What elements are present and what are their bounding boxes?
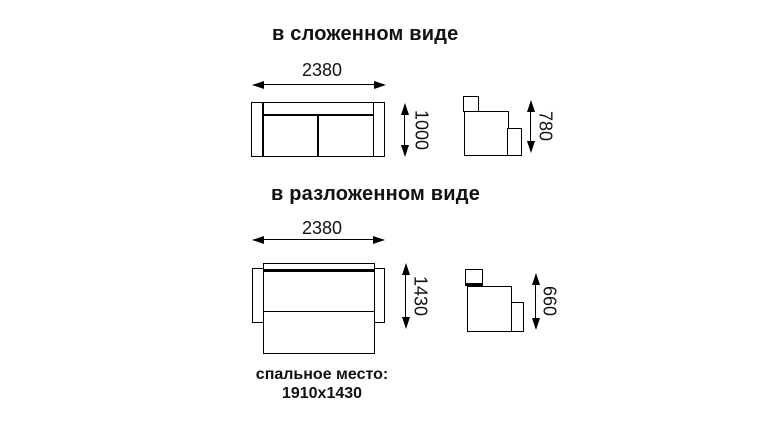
arrowhead-left-icon <box>252 236 264 244</box>
arrowhead-up-icon <box>402 263 410 275</box>
right-armrest-line <box>373 103 375 156</box>
unfolded-width-dimension-arrow <box>252 235 385 244</box>
side-backrest-top <box>465 269 483 286</box>
folded-height-dimension-arrow <box>400 103 409 157</box>
folded-side-height-label: 780 <box>535 111 556 141</box>
arrowhead-right-icon <box>373 236 385 244</box>
right-armrest <box>374 268 386 323</box>
bed-extension <box>263 311 375 355</box>
unfolded-view-title: в разложенном виде <box>271 183 480 206</box>
arrow-line <box>254 84 384 86</box>
backrest-thick-line <box>264 269 374 272</box>
left-armrest-line <box>262 103 264 156</box>
arrowhead-down-icon <box>401 145 409 157</box>
sofa-body <box>263 263 375 312</box>
unfolded-height-label: 1430 <box>410 276 431 316</box>
unfolded-side-height-label: 660 <box>539 286 560 316</box>
side-body <box>467 286 512 332</box>
arrow-line <box>254 239 383 241</box>
sofa-dimensions-diagram: в сложенном виде 2380 1000 780 в разложе… <box>0 0 770 433</box>
side-seat-step <box>511 302 524 332</box>
arrowhead-down-icon <box>402 317 410 329</box>
side-body <box>464 111 509 156</box>
sleeping-area-dimensions: 1910x1430 <box>256 384 388 403</box>
folded-sofa-front-view <box>251 102 385 157</box>
folded-height-label: 1000 <box>411 110 432 150</box>
arrowhead-down-icon <box>527 141 535 153</box>
arrowhead-down-icon <box>532 318 540 330</box>
arrowhead-up-icon <box>401 103 409 115</box>
arrowhead-up-icon <box>527 100 535 112</box>
sleeping-area-label: спальное место: <box>256 365 388 384</box>
arrowhead-right-icon <box>374 81 386 89</box>
sleeping-area-note: спальное место: 1910x1430 <box>256 365 388 403</box>
arrowhead-up-icon <box>532 273 540 285</box>
arrowhead-left-icon <box>252 81 264 89</box>
folded-width-dimension-arrow <box>252 80 386 89</box>
folded-view-title: в сложенном виде <box>272 23 458 46</box>
side-seat-step <box>507 128 522 156</box>
left-armrest <box>252 268 264 323</box>
seat-divider-line <box>317 115 319 156</box>
folded-width-label: 2380 <box>302 60 342 81</box>
